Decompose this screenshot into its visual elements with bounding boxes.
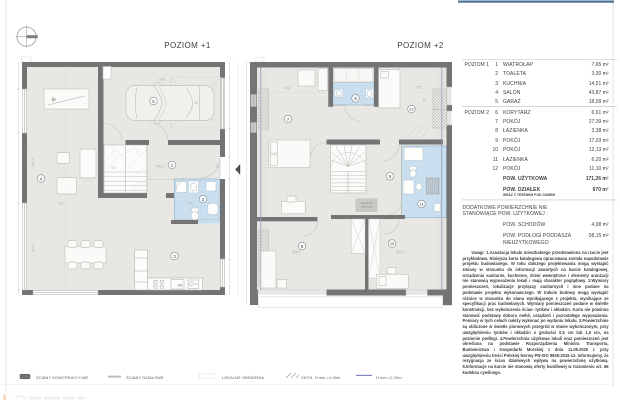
svg-text:8: 8 (354, 96, 357, 101)
svg-text:1: 1 (171, 163, 174, 168)
svg-text:5: 5 (152, 99, 155, 104)
svg-text:4: 4 (40, 176, 43, 181)
svg-text:620.5: 620.5 (31, 158, 35, 167)
svg-text:WŁAZ NA: WŁAZ NA (361, 201, 373, 205)
svg-text:720: 720 (111, 166, 117, 170)
svg-text:316: 316 (58, 202, 64, 206)
svg-text:9: 9 (301, 244, 304, 249)
svg-text:748: 748 (284, 87, 290, 91)
svg-text:415.5: 415.5 (31, 244, 35, 253)
svg-text:2: 2 (202, 197, 205, 202)
svg-text:443.5: 443.5 (156, 164, 165, 168)
svg-text:12: 12 (409, 107, 413, 112)
svg-text:548: 548 (159, 78, 165, 82)
svg-text:575: 575 (416, 86, 422, 90)
svg-text:11: 11 (419, 202, 423, 207)
svg-text:581.5: 581.5 (396, 250, 405, 254)
svg-text:36: 36 (194, 101, 198, 105)
svg-text:7: 7 (287, 117, 290, 122)
svg-text:90: 90 (423, 98, 427, 102)
svg-text:6: 6 (389, 174, 392, 179)
svg-text:361: 361 (187, 202, 193, 206)
svg-text:523.5: 523.5 (292, 250, 301, 254)
svg-text:90: 90 (215, 164, 219, 168)
svg-text:ZM: ZM (178, 283, 183, 287)
svg-text:STRYCH: STRYCH (361, 205, 372, 209)
svg-text:3: 3 (173, 254, 176, 259)
